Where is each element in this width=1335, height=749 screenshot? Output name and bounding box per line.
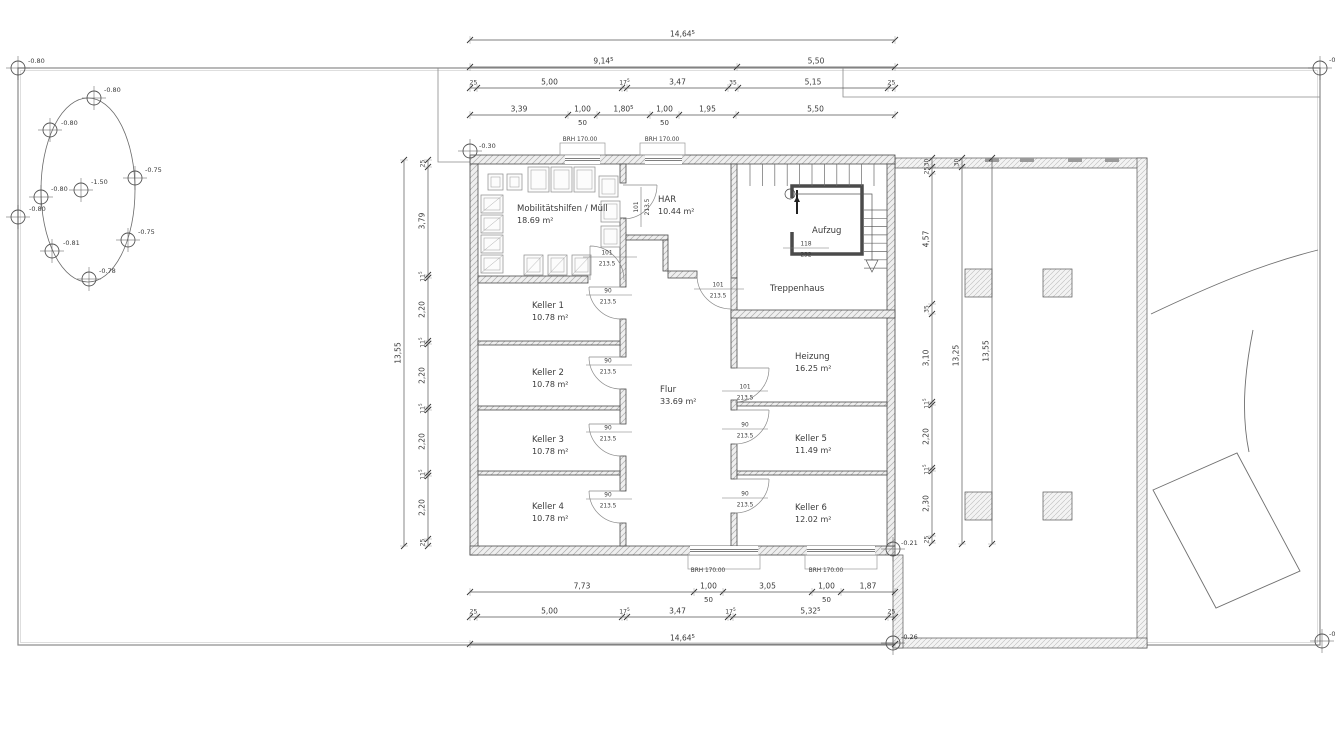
elevation-marker: -1.50: [69, 178, 108, 202]
room-area-keller5: 11.49 m²: [795, 446, 831, 455]
dim-label: 13,55: [394, 342, 403, 364]
wall-interior-v2: [731, 164, 737, 546]
terrace-wall-south: [895, 638, 1147, 648]
elevation-marker: -0.80: [6, 205, 46, 229]
wall-mobility-south: [478, 276, 588, 283]
door-width-door-har: 101: [634, 201, 640, 212]
dim-label: 4,57: [922, 230, 931, 247]
room-area-keller4: 10.78 m²: [532, 514, 568, 523]
door-height-door-heizung: 213.5: [737, 396, 754, 402]
dim-chain-top-3: 255,001753,47355,1525: [467, 78, 898, 93]
rack: [548, 255, 567, 275]
elevation-marker: -0: [1308, 56, 1335, 80]
dim-label: 175: [619, 78, 630, 87]
floor-plan-canvas: Mobilitätshilfen / Müll18.69 m²HAR10.44 …: [0, 0, 1335, 749]
wall-exterior-east: [887, 164, 895, 546]
window-sill-label: BRH 170.00: [563, 137, 598, 143]
dim-label: 35: [924, 305, 931, 313]
door-width-door-treppenhaus: 101: [712, 283, 723, 289]
elevation-value: -0.21: [901, 539, 918, 547]
dim-label: 115: [418, 403, 427, 414]
dim-label: 5,50: [807, 105, 824, 114]
dim-label: 5,00: [541, 607, 558, 616]
door-width-door-mobility: 101: [601, 251, 612, 257]
dim-label: 115: [922, 398, 931, 409]
dim-chain-top-overall: 14,645: [467, 30, 898, 45]
door-width-door-keller1: 90: [604, 289, 612, 295]
elevation-value: -0.75: [145, 166, 162, 174]
elevation-markers: -0.80-0-0.80-0-0.80-0.80-0.75-1.50-0.80-…: [6, 56, 1335, 655]
light-well: [688, 555, 760, 569]
door-swing-treppenhaus: [697, 275, 731, 309]
dim-chain-bottom-2: 255,001753,471755,32525: [467, 607, 898, 622]
dim-label: 115: [418, 469, 427, 480]
rack: [481, 215, 503, 233]
dim-chain-bottom-overall: 14,645: [467, 634, 898, 649]
dim-chain-left-overall: 13,55: [394, 157, 409, 549]
dim-label: 3,47: [669, 607, 686, 616]
dim-label: 13,55: [982, 340, 991, 362]
elevation-value: -0.80: [61, 119, 78, 127]
dim-label: 9,145: [593, 57, 613, 66]
elevator-door-gap: [789, 198, 794, 232]
dim-chain-right-2: 3013,25: [952, 155, 967, 547]
room-name-keller4: Keller 4: [532, 502, 564, 512]
dim-chain-top-4: 3,391,00501,8051,00501,955,50: [467, 105, 898, 128]
dim-label: 25: [420, 160, 427, 168]
dim-label: 1,805: [613, 105, 633, 114]
dim-label: 25: [888, 609, 896, 616]
dim-label: 25: [420, 539, 427, 547]
dim-sub-label: 50: [660, 119, 669, 127]
dim-label: 1,00: [818, 582, 835, 591]
dim-label: 3,47: [669, 78, 686, 87]
dim-label: 25: [924, 536, 931, 544]
dim-label: 3,79: [418, 212, 427, 229]
door-height-door-mobility: 213.5: [599, 262, 616, 268]
dim-label: 3,39: [511, 105, 528, 114]
room-name-keller5: Keller 5: [795, 434, 827, 444]
dim-sub-label: 50: [822, 596, 831, 604]
dim-label: 2,30: [922, 495, 931, 512]
wall-har-south-b: [668, 271, 697, 278]
elevation-value: -1.50: [91, 178, 108, 186]
window-sill-label: BRH 170.00: [645, 137, 680, 143]
elevation-value: -0.80: [104, 86, 121, 94]
dim-label: 115: [922, 464, 931, 475]
wall-exterior-west: [470, 164, 478, 555]
meter-cabinet: [599, 176, 618, 197]
stair-down-arrow-icon: [866, 260, 878, 272]
elevation-marker: -0.80: [38, 118, 78, 142]
wall-keller2-3: [478, 406, 620, 410]
dim-label: 115: [418, 337, 427, 348]
door-width-door-keller5: 90: [741, 423, 749, 429]
light-well: [805, 555, 877, 569]
wall-heizung-keller5: [737, 402, 887, 406]
window-sill-label: BRH 170.00: [809, 568, 844, 574]
door-width-door-keller3: 90: [604, 426, 612, 432]
elevation-value: -0.81: [63, 239, 80, 247]
elevation-value: -0.80: [29, 205, 46, 213]
room-name-keller2: Keller 2: [532, 368, 564, 378]
door-width-door-keller6: 90: [741, 492, 749, 498]
door-height-door-keller6: 213.5: [737, 503, 754, 509]
elevation-value: -0.75: [138, 228, 155, 236]
dim-chain-top-2: 9,1455,50: [467, 57, 898, 72]
dim-label: 14,645: [670, 634, 695, 643]
curve-outer: [1151, 250, 1318, 314]
large-bin: [574, 167, 595, 192]
dim-label: 5,00: [541, 78, 558, 87]
dim-label: 1,00: [656, 105, 673, 114]
terrace-column: [965, 492, 992, 520]
dim-label: 7,73: [574, 582, 591, 591]
room-name-flur: Flur: [660, 385, 677, 395]
room-name-treppenhaus: Treppenhaus: [769, 284, 825, 294]
elevation-value: -0.80: [28, 57, 45, 65]
dim-label: 25: [924, 167, 931, 175]
large-bin: [528, 167, 549, 192]
dim-label: 2,20: [418, 301, 427, 318]
wall-keller5-6: [737, 471, 887, 475]
dim-chain-bottom-1: 7,731,00503,051,00501,87: [467, 582, 898, 605]
dim-label: 25: [888, 80, 896, 87]
terrace-column: [1043, 492, 1072, 520]
room-area-flur: 33.69 m²: [660, 397, 696, 406]
dim-label: 30: [954, 159, 961, 167]
rack: [481, 235, 503, 253]
rack: [572, 255, 591, 275]
dim-label: 2,20: [922, 428, 931, 445]
site-boundary: [18, 68, 1320, 645]
dim-label: 25: [470, 80, 478, 87]
waste-bin: [507, 174, 522, 190]
elevation-marker: -0.80: [82, 86, 121, 110]
room-area-keller1: 10.78 m²: [532, 313, 568, 322]
room-name-mobility: Mobilitätshilfen / Müll: [517, 204, 608, 214]
door-height-door-keller5: 213.5: [737, 434, 754, 440]
door-height-door-treppenhaus: 213.5: [710, 294, 727, 300]
light-well: [640, 143, 685, 155]
room-name-keller6: Keller 6: [795, 503, 827, 513]
wall-treppenhaus-south: [731, 310, 895, 318]
elevation-value: -0.78: [99, 267, 116, 275]
window-sill-label: BRH 170.00: [691, 568, 726, 574]
room-name-keller3: Keller 3: [532, 435, 564, 445]
door-height-door-keller1: 213.5: [600, 300, 617, 306]
door-height-door-keller2: 213.5: [600, 370, 617, 376]
dim-chain-right-overall: 13,55: [982, 155, 997, 547]
dim-chain-right-chain: 30254,57353,101152,201152,3025: [922, 155, 937, 546]
room-name-heizung: Heizung: [795, 352, 830, 362]
dim-label: 3,05: [759, 582, 776, 591]
door-swing-har: [623, 185, 657, 219]
door-width-door-keller4: 90: [604, 493, 612, 499]
ramp-outline: [1153, 453, 1300, 608]
dim-chain-left-chain: 253,791152,201152,201152,201152,2025: [418, 157, 433, 549]
room-area-heizung: 16.25 m²: [795, 364, 831, 373]
dim-label: 2,20: [418, 499, 427, 516]
door-height-door-har: 213.5: [645, 198, 651, 215]
dim-label: 5,325: [800, 607, 820, 616]
elevation-marker: -0.81: [40, 239, 80, 263]
site-boundary-step-right: [843, 68, 1320, 97]
elevation-marker: -0: [1310, 629, 1335, 653]
dim-label: 5,15: [805, 78, 822, 87]
terrace-wall-east: [1137, 158, 1147, 648]
room-area-har: 10.44 m²: [658, 207, 694, 216]
dim-label: 175: [725, 607, 736, 616]
wall-keller3-4: [478, 471, 620, 475]
wall-exterior-north: [470, 155, 895, 164]
light-well: [560, 143, 605, 155]
elevation-marker: -0.75: [116, 228, 155, 252]
door-height-door-keller3: 213.5: [600, 437, 617, 443]
door-width-door-heizung: 101: [739, 385, 750, 391]
dim-label: 25: [470, 609, 478, 616]
site-boundary-outer: [18, 68, 1320, 645]
elevation-marker: -0.78: [77, 267, 116, 291]
large-bin: [551, 167, 572, 192]
dim-label: 3,10: [922, 349, 931, 366]
curve-inner: [1244, 330, 1253, 452]
dim-label: 175: [619, 607, 630, 616]
room-area-mobility: 18.69 m²: [517, 216, 553, 225]
dim-label: 13,25: [952, 345, 961, 367]
landscape-curves: [1151, 250, 1318, 608]
elevation-value: -0: [1329, 56, 1335, 64]
room-area-keller2: 10.78 m²: [532, 380, 568, 389]
dim-label: 2,20: [418, 433, 427, 450]
wall-har-south-a: [626, 235, 668, 240]
elevation-value: -0.30: [479, 142, 496, 150]
dim-sub-label: 50: [704, 596, 713, 604]
dim-label: 1,00: [574, 105, 591, 114]
elevation-marker: -0.75: [123, 166, 162, 190]
room-area-keller6: 12.02 m²: [795, 515, 831, 524]
dim-label: 30: [924, 159, 931, 167]
dim-label: 5,50: [808, 57, 825, 66]
dim-label: 1,87: [860, 582, 877, 591]
dim-sub-label: 50: [578, 119, 587, 127]
stair-treads-lower: [864, 210, 887, 268]
stair-treads-upper: [750, 164, 874, 186]
terrace-column: [965, 269, 992, 297]
rack: [481, 195, 503, 213]
waste-bin: [488, 174, 503, 190]
wall-interior-v1: [620, 164, 626, 546]
floor-plan-svg: Mobilitätshilfen / Müll18.69 m²HAR10.44 …: [0, 0, 1335, 749]
dim-label: 1,95: [699, 105, 716, 114]
wall-har-step: [663, 240, 668, 271]
meter-cabinet: [601, 226, 620, 247]
door-height-door-keller4: 213.5: [600, 504, 617, 510]
elevation-value: -0: [1329, 630, 1335, 638]
site-boundary-step-left: [438, 68, 470, 162]
rack: [524, 255, 543, 275]
elevation-value: -0.80: [51, 185, 68, 193]
room-name-aufzug: Aufzug: [812, 226, 841, 236]
dim-label: 2,20: [418, 367, 427, 384]
wall-keller1-2: [478, 341, 620, 345]
dim-label: 35: [729, 80, 737, 87]
room-name-keller1: Keller 1: [532, 301, 564, 311]
dim-label: 1,00: [700, 582, 717, 591]
dim-label: 115: [418, 271, 427, 282]
room-area-keller3: 10.78 m²: [532, 447, 568, 456]
room-name-har: HAR: [658, 195, 676, 205]
rack: [481, 255, 503, 273]
door-height-lift-size: 232: [800, 253, 811, 259]
dim-label: 14,645: [670, 30, 695, 39]
door-width-door-keller2: 90: [604, 359, 612, 365]
terrace-column: [1043, 269, 1072, 297]
door-width-lift-size: 118: [800, 242, 811, 248]
elevation-value: -0.26: [901, 633, 918, 641]
